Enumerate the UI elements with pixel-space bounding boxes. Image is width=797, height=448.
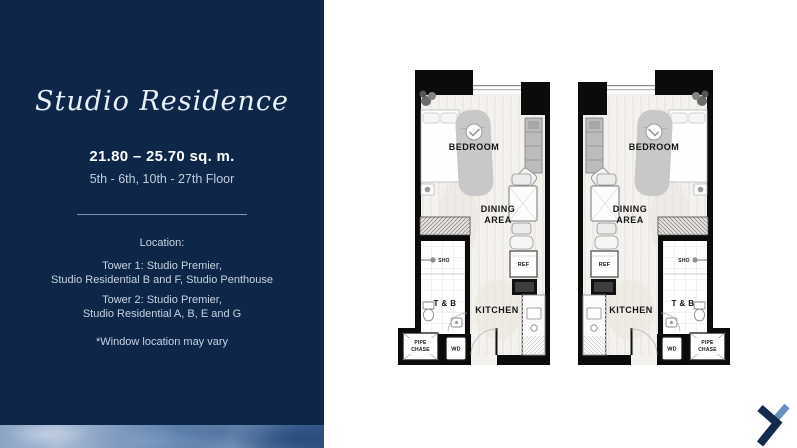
window-note: *Window location may vary <box>0 336 324 348</box>
divider <box>77 214 247 215</box>
info-panel: Studio Residence 21.80 – 25.70 sq. m. 5t… <box>0 0 324 448</box>
floorplan-left: BEDROOM DINING AREA KITCHEN T & B SHO RE… <box>398 70 554 365</box>
floor-range: 5th - 6th, 10th - 27th Floor <box>0 172 324 186</box>
label-shower: SHO <box>438 258 449 264</box>
label-washer-dryer: WD <box>667 347 677 353</box>
label-refrigerator: REF <box>518 262 530 268</box>
label-refrigerator: REF <box>599 262 611 268</box>
tower1-line2: Studio Residential B and F, Studio Penth… <box>0 274 324 286</box>
label-dining-line2: AREA <box>484 215 512 225</box>
label-dining-line1: DINING <box>613 204 648 214</box>
slide: Studio Residence 21.80 – 25.70 sq. m. 5t… <box>0 0 797 448</box>
watercolor-texture <box>0 425 324 448</box>
label-dining-line1: DINING <box>481 204 516 214</box>
label-shower: SHO <box>678 258 689 264</box>
label-kitchen: KITCHEN <box>475 305 519 315</box>
label-pipe-chase-line2: CHASE <box>411 347 430 353</box>
unit-area-range: 21.80 – 25.70 sq. m. <box>0 148 324 165</box>
tower1-line1: Tower 1: Studio Premier, <box>0 260 324 272</box>
label-dining-line2: AREA <box>616 215 644 225</box>
label-pipe-chase-line1: PIPE <box>414 340 427 346</box>
tower2-line2: Studio Residential A, B, E and G <box>0 308 324 320</box>
label-washer-dryer: WD <box>451 347 461 353</box>
tower2-line1: Tower 2: Studio Premier, <box>0 294 324 306</box>
location-heading: Location: <box>0 237 324 249</box>
label-kitchen: KITCHEN <box>609 305 653 315</box>
label-bedroom: BEDROOM <box>449 142 500 152</box>
label-bedroom: BEDROOM <box>629 142 680 152</box>
label-toilet-bath: T & B <box>434 299 457 308</box>
label-pipe-chase-line1: PIPE <box>701 340 714 346</box>
brand-logo-icon <box>750 400 794 448</box>
label-pipe-chase-line2: CHASE <box>698 347 717 353</box>
label-toilet-bath: T & B <box>672 299 695 308</box>
floorplan-right: BEDROOM DINING AREA KITCHEN T & B SHO RE… <box>574 70 730 365</box>
page-title: Studio Residence <box>0 86 324 117</box>
